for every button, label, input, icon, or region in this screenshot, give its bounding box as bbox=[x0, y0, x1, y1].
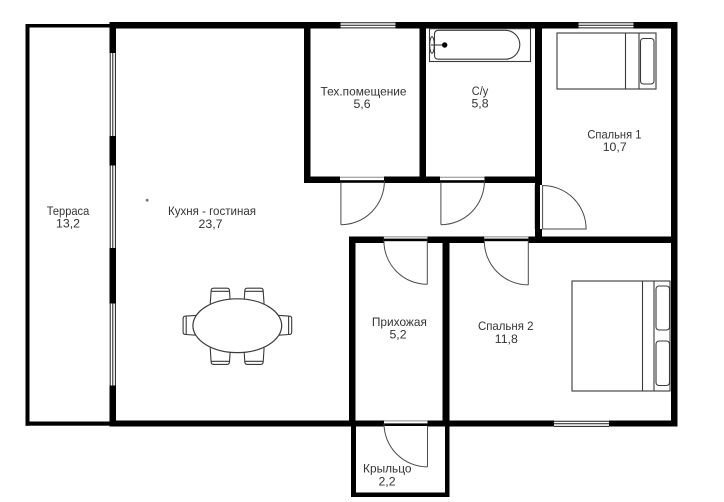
svg-text:Спальня 2: Спальня 2 bbox=[478, 319, 534, 333]
svg-text:11,8: 11,8 bbox=[495, 332, 518, 346]
svg-text:Крыльцо: Крыльцо bbox=[363, 462, 412, 476]
svg-text:5,6: 5,6 bbox=[353, 97, 370, 111]
svg-text:13,2: 13,2 bbox=[56, 217, 80, 231]
svg-text:Кухня - гостиная: Кухня - гостиная bbox=[168, 204, 256, 218]
svg-text:23,7: 23,7 bbox=[199, 217, 223, 231]
svg-text:5,2: 5,2 bbox=[389, 328, 406, 342]
svg-text:5,8: 5,8 bbox=[471, 97, 488, 111]
svg-text:10,7: 10,7 bbox=[603, 140, 627, 154]
svg-text:2,2: 2,2 bbox=[378, 475, 395, 489]
